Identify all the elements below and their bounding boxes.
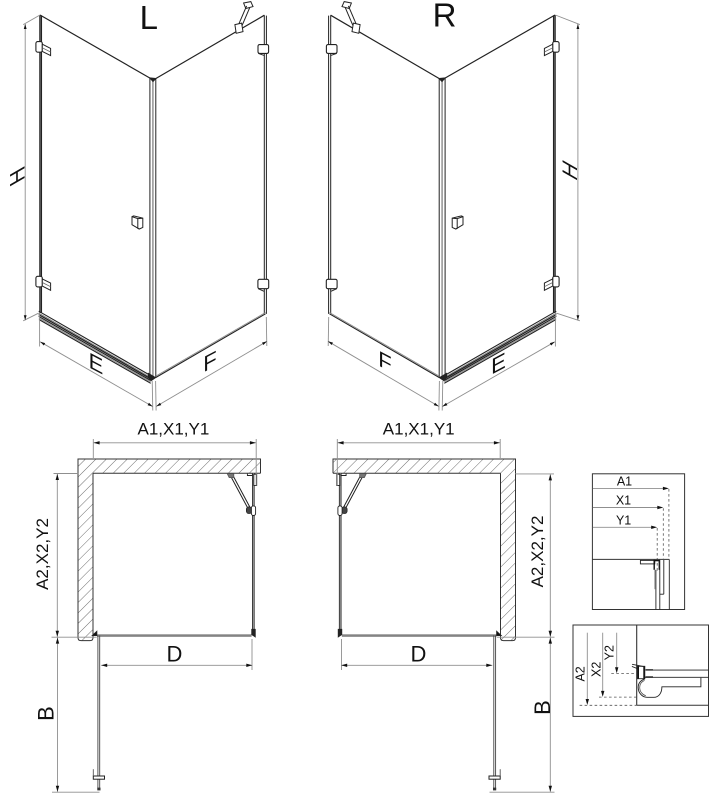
svg-text:A2,X2,Y2: A2,X2,Y2 (528, 516, 547, 588)
svg-text:X1: X1 (616, 494, 631, 508)
svg-text:X2: X2 (589, 662, 603, 677)
svg-text:D: D (167, 642, 183, 667)
svg-text:A2,X2,Y2: A2,X2,Y2 (33, 518, 52, 590)
svg-text:L: L (140, 0, 158, 36)
svg-text:Y2: Y2 (603, 645, 617, 660)
svg-text:A1,X1,Y1: A1,X1,Y1 (383, 420, 455, 439)
svg-text:D: D (410, 642, 426, 667)
svg-text:B: B (530, 700, 555, 715)
svg-text:B: B (34, 706, 59, 721)
svg-text:A1: A1 (617, 474, 632, 488)
svg-text:A1,X1,Y1: A1,X1,Y1 (137, 420, 209, 439)
svg-text:Y1: Y1 (616, 513, 631, 527)
svg-text:A2: A2 (574, 666, 588, 681)
svg-text:R: R (433, 0, 457, 34)
